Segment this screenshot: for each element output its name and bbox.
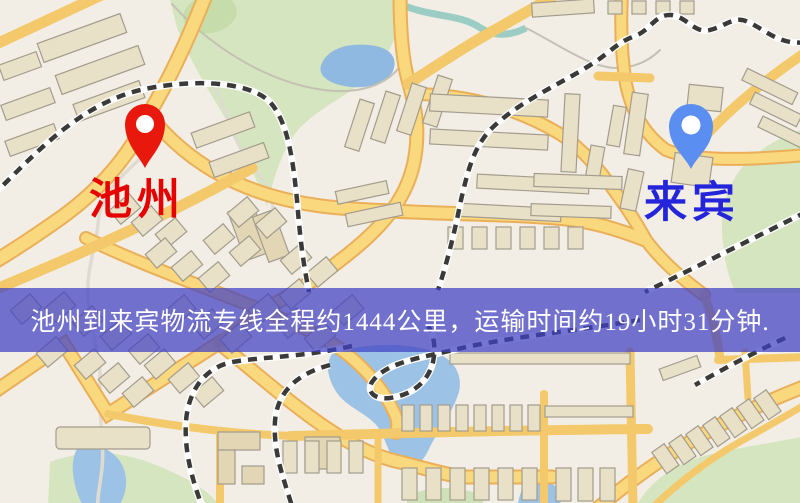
destination-pin-hole [682, 116, 701, 135]
origin-label: 池州 [89, 179, 185, 222]
origin-pin-hole [136, 115, 154, 133]
origin-pin-icon[interactable] [117, 98, 173, 172]
destination-pin-icon[interactable] [660, 97, 722, 173]
route-info-banner: 池州到来宾物流专线全程约1444公里，运输时间约19小时31分钟. [0, 288, 800, 352]
route-info-text: 池州到来宾物流专线全程约1444公里，运输时间约19小时31分钟. [30, 302, 769, 338]
map-canvas[interactable] [0, 0, 800, 503]
destination-label: 来宾 [644, 182, 740, 225]
map-screenshot: 池州到来宾物流专线全程约1444公里，运输时间约19小时31分钟. 池州 来宾 [0, 0, 800, 503]
destination-pin-body[interactable] [669, 104, 713, 169]
origin-pin-body[interactable] [125, 104, 165, 168]
